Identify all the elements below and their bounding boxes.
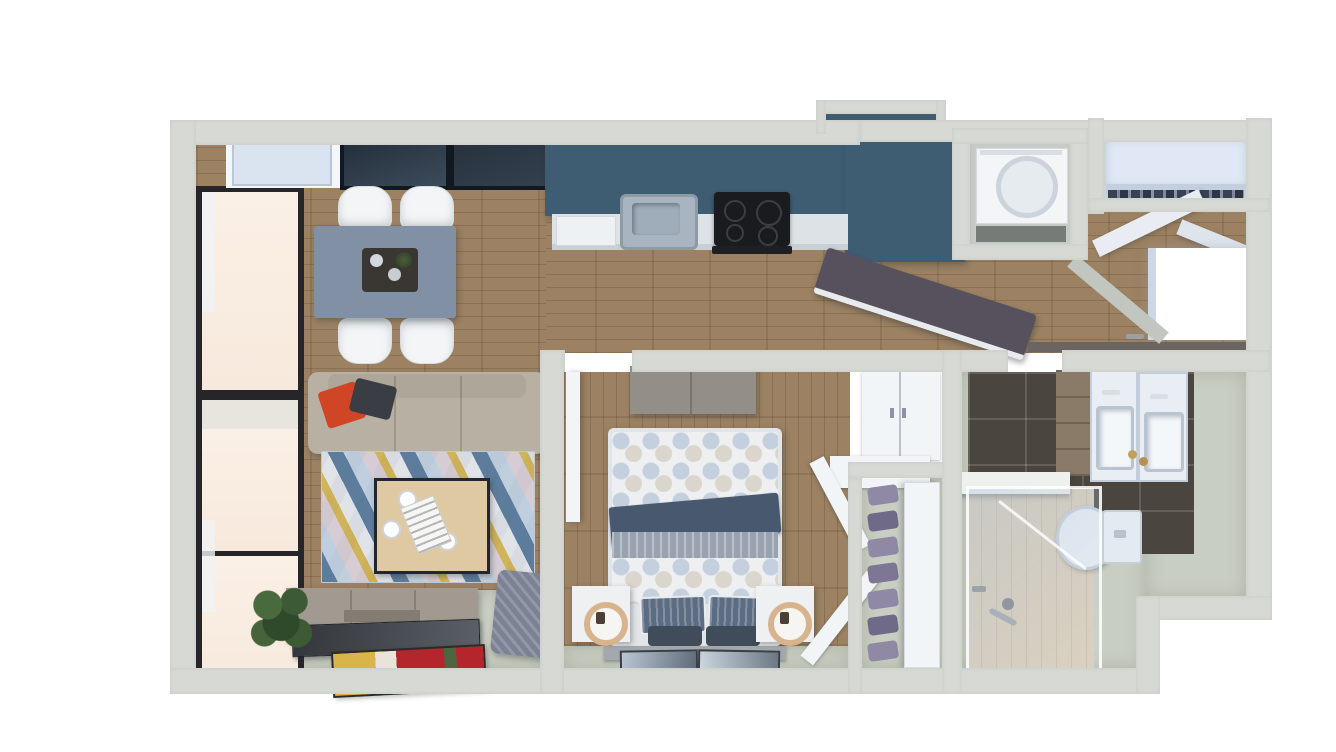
soap-gold-1 [1128, 450, 1137, 459]
dining-chair-top-left [338, 186, 392, 230]
tv-dresser [630, 366, 756, 414]
wall-top-left [170, 120, 860, 145]
shoe-closet-door-panel [904, 482, 940, 668]
faucet-right [1150, 394, 1168, 399]
vanity-wood-cabinet [1056, 370, 1090, 476]
wall-bump-left [816, 100, 826, 134]
shower-drain [1002, 598, 1014, 610]
washer-nook-shadow [976, 226, 1066, 242]
washer-door [996, 156, 1058, 218]
cooktop-burner-2 [756, 200, 782, 226]
entry-door-open [1148, 248, 1256, 340]
sofa-cushion-seam-2 [460, 376, 462, 452]
wall-nook-bottom [952, 244, 1088, 260]
dining-chair-bottom-left [338, 318, 392, 364]
curtain-panel-bottom [202, 520, 215, 612]
wall-bedroom-left [540, 350, 564, 694]
coffee-mug-2 [382, 520, 401, 539]
cooktop-burner-4 [758, 226, 778, 246]
wardrobe-handle-1 [890, 408, 894, 418]
wardrobe-cabinet [862, 372, 940, 460]
wall-bump-top [816, 100, 946, 114]
wall-coat-closet-bottom [1088, 198, 1270, 212]
window-glass-middle [202, 429, 298, 551]
floor-plan-render [0, 0, 1336, 752]
sink-right [1144, 412, 1184, 472]
lamp-left [584, 602, 628, 646]
entry-ledge-item [1126, 334, 1144, 339]
coat-closet-shelf [1106, 140, 1246, 186]
bedroom-door-leaf [566, 372, 580, 522]
wall-nook-top [952, 128, 1088, 144]
wall-nook-right [1070, 128, 1088, 260]
bed-cushion-right [706, 626, 760, 646]
wall-connector-right [1136, 596, 1160, 694]
soap-gold-2 [1139, 457, 1148, 466]
window-glass-upper [202, 192, 298, 390]
cooktop-burner-1 [724, 200, 746, 222]
lamp-right [768, 602, 812, 646]
potted-plant [248, 584, 314, 654]
wall-divider-right [1062, 350, 1270, 372]
wall-nook-left [952, 128, 970, 260]
shower-glass-enclosure [966, 486, 1102, 676]
wardrobe-handle-2 [902, 408, 906, 418]
dishwasher [556, 216, 616, 246]
toilet-flush-button [1114, 530, 1126, 538]
wall-left [170, 120, 196, 694]
lamp-right-bulb [780, 612, 789, 624]
tray-plant [396, 252, 412, 268]
wall-bottom-main [170, 668, 1160, 694]
tray-cup-1 [370, 254, 383, 267]
shower-valve [972, 586, 986, 592]
sink-left [1096, 406, 1134, 470]
dining-chair-bottom-right [400, 318, 454, 364]
kitchen-sink-basin [632, 203, 680, 235]
wall-shoe-closet-left [848, 478, 862, 694]
bed-cushion-left [648, 626, 702, 646]
wall-bottom-right [1150, 596, 1272, 620]
wall-bath-left [942, 350, 962, 694]
dining-chair-top-right [400, 186, 454, 230]
kitchen-counter-right [845, 140, 965, 262]
washer-controls [980, 150, 1062, 155]
lamp-left-bulb [596, 612, 605, 624]
oven-front [712, 246, 792, 254]
curtain-panel-top [202, 192, 215, 312]
cooktop-burner-3 [726, 224, 744, 242]
faucet-left [1102, 390, 1120, 395]
tray-cup-2 [388, 268, 401, 281]
